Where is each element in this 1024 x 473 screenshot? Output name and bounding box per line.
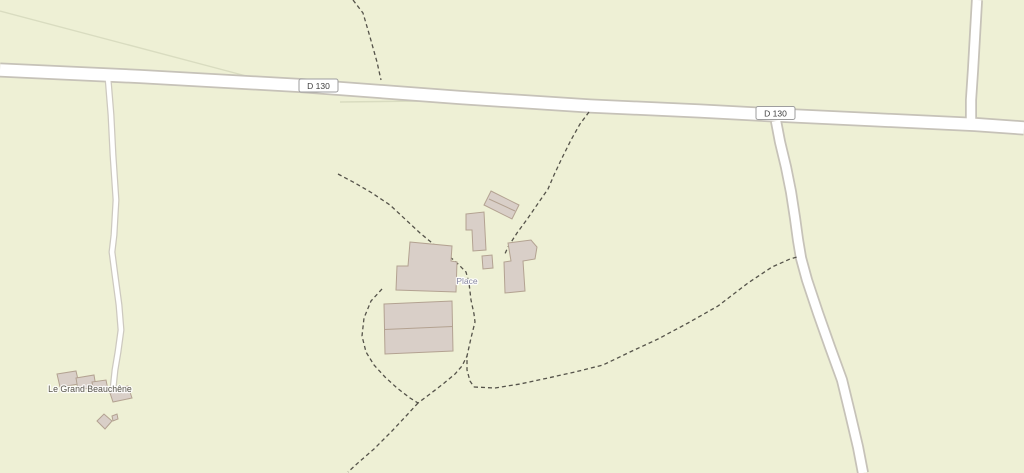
- road-ref-label: D 130: [764, 108, 787, 118]
- place-label: Place: [456, 276, 478, 286]
- hamlet-label: Le Grand Beauchêne: [48, 384, 132, 394]
- map-canvas: D 130 D 130 Place Le Grand Beauchêne: [0, 0, 1024, 473]
- map-viewport[interactable]: D 130 D 130 Place Le Grand Beauchêne: [0, 0, 1024, 473]
- road-ref-label: D 130: [307, 81, 330, 91]
- building-small-square: [482, 255, 493, 269]
- road-ref-badge-west: D 130: [299, 79, 338, 92]
- road-ref-badge-east: D 130: [756, 107, 795, 120]
